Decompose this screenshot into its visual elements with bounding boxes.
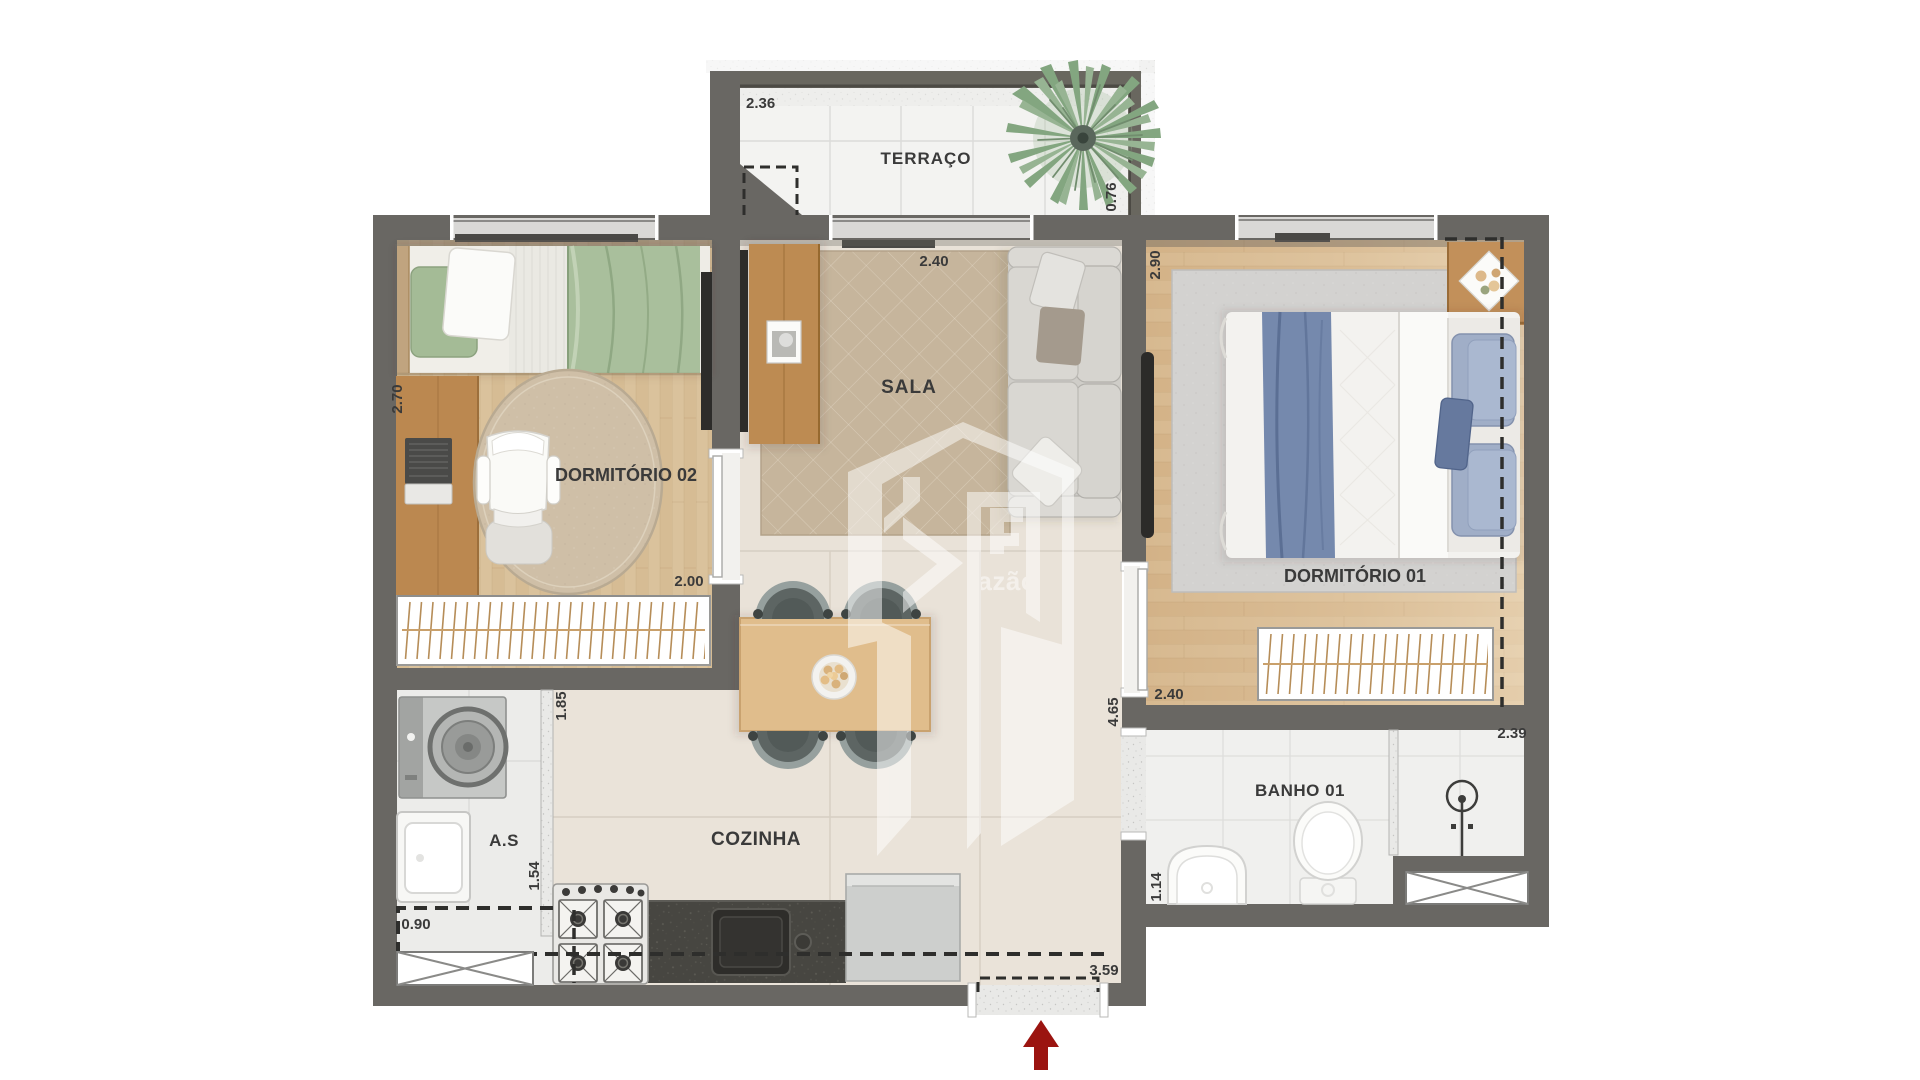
svg-text:2.70: 2.70 xyxy=(389,384,406,413)
svg-text:2.39: 2.39 xyxy=(1497,725,1526,742)
svg-text:DORMITÓRIO 01: DORMITÓRIO 01 xyxy=(1284,565,1426,586)
svg-text:DORMITÓRIO 02: DORMITÓRIO 02 xyxy=(555,464,697,485)
svg-text:2.90: 2.90 xyxy=(1147,250,1164,279)
svg-text:COZINHA: COZINHA xyxy=(711,829,801,850)
svg-text:4.65: 4.65 xyxy=(1105,697,1122,726)
svg-text:1.14: 1.14 xyxy=(1148,872,1165,902)
svg-text:2.40: 2.40 xyxy=(1154,686,1183,703)
svg-text:1.54: 1.54 xyxy=(526,861,543,891)
svg-text:razão: razão xyxy=(967,566,1037,596)
svg-text:A.S: A.S xyxy=(489,831,519,850)
svg-text:1.85: 1.85 xyxy=(553,691,570,720)
svg-text:2.00: 2.00 xyxy=(674,573,703,590)
svg-text:2.36: 2.36 xyxy=(746,95,775,112)
svg-text:BANHO 01: BANHO 01 xyxy=(1255,781,1345,800)
svg-text:2.40: 2.40 xyxy=(919,253,948,270)
svg-text:3.59: 3.59 xyxy=(1089,962,1118,979)
svg-text:SALA: SALA xyxy=(881,377,937,398)
svg-text:0.76: 0.76 xyxy=(1103,182,1120,211)
svg-text:TERRAÇO: TERRAÇO xyxy=(880,149,971,168)
svg-text:0.90: 0.90 xyxy=(401,916,430,933)
